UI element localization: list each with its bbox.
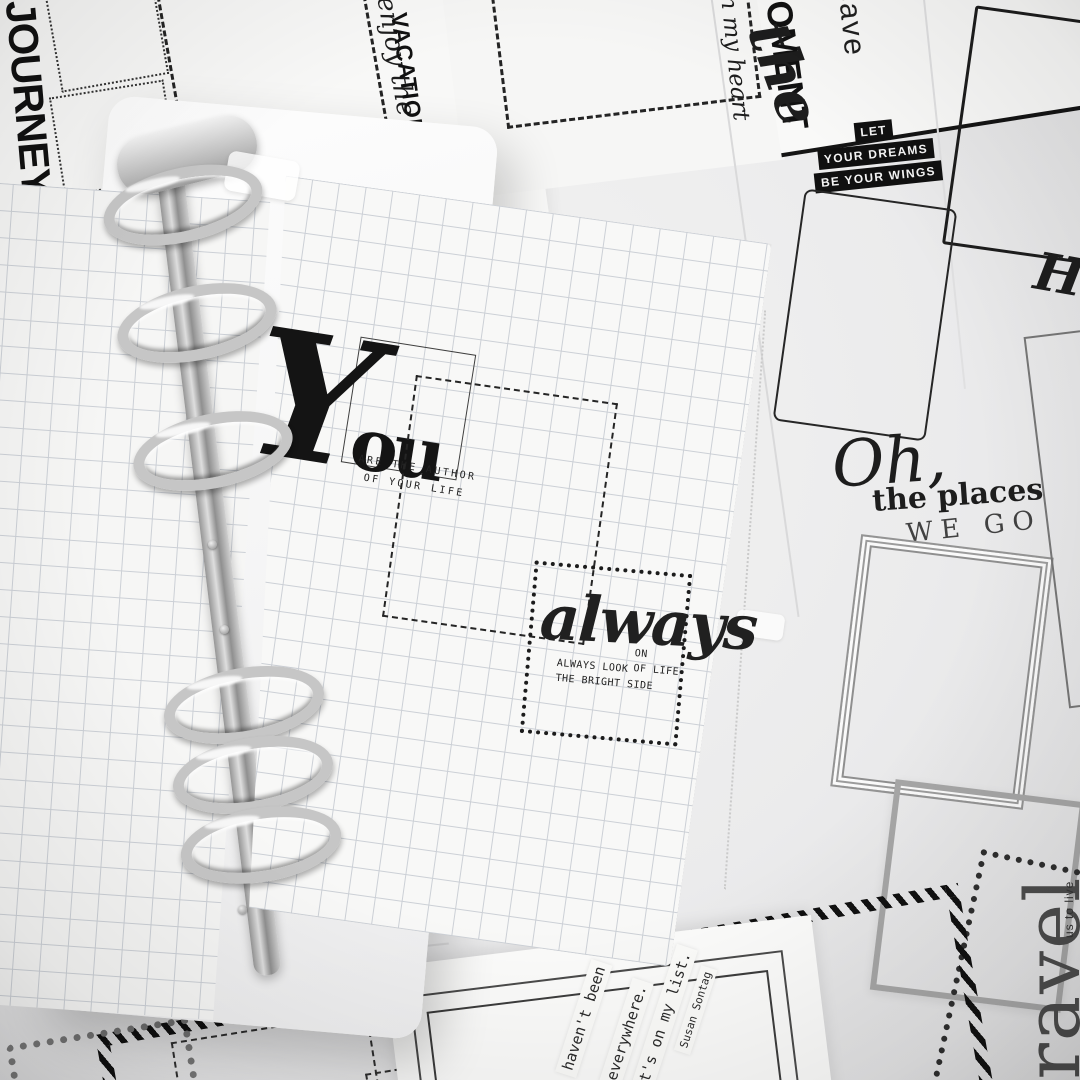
spine-rivet-2	[220, 625, 229, 634]
thin-photo-frame-portrait	[772, 188, 957, 441]
save-stamp-text: save	[830, 0, 871, 59]
hey-script-text: Hey	[1030, 241, 1080, 321]
wings-strip-1: LET	[853, 119, 893, 143]
always-right-caption: ON OF LIFE	[633, 646, 681, 680]
planner-flatlay-photo: JOURNEY enjoy the VACATION in my heart M…	[0, 0, 1080, 1080]
travel-caption-text: us to live	[1062, 881, 1076, 938]
spine-rivet-3	[238, 905, 247, 914]
spine-rivet-1	[208, 540, 217, 549]
wings-quote-strips: LET YOUR DREAMS BE YOUR WINGS	[803, 111, 950, 197]
